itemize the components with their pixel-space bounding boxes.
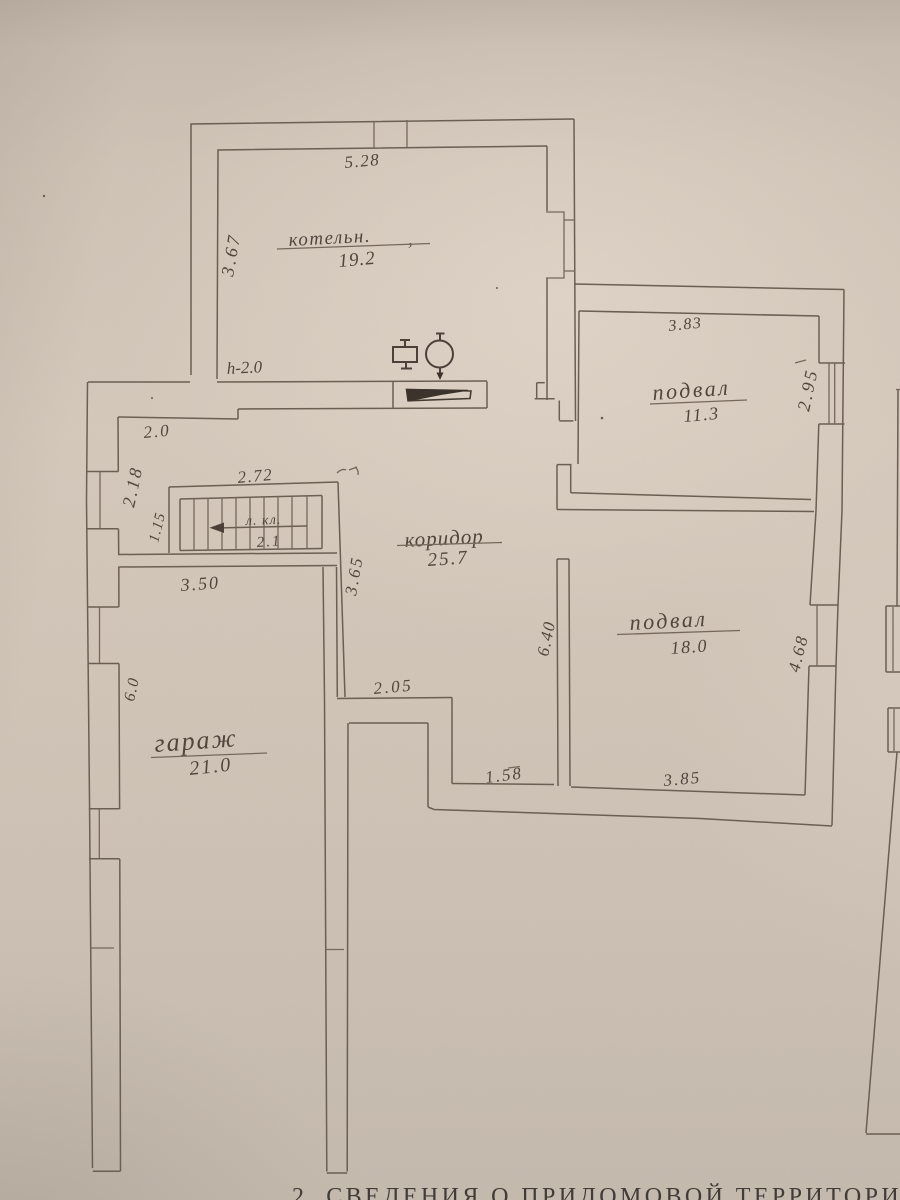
svg-text:3.83: 3.83: [667, 315, 704, 336]
svg-text:гараж: гараж: [153, 723, 238, 758]
svg-text:11.3: 11.3: [683, 403, 721, 426]
svg-text:,: ,: [408, 229, 413, 250]
svg-text:2.1: 2.1: [256, 533, 282, 551]
svg-text:подвал: подвал: [629, 606, 708, 635]
svg-text:коридор: коридор: [404, 524, 484, 552]
svg-text:5.28: 5.28: [344, 150, 381, 172]
svg-text:21.0: 21.0: [188, 754, 233, 780]
svg-text:25.7: 25.7: [427, 547, 470, 571]
svg-text:h-2.0: h-2.0: [226, 357, 263, 378]
svg-text:2.0: 2.0: [143, 421, 172, 442]
svg-text:2.05: 2.05: [373, 676, 414, 698]
svg-text:19.2: 19.2: [338, 248, 377, 272]
svg-text:3.85: 3.85: [662, 768, 702, 790]
svg-text:2.72: 2.72: [237, 465, 274, 487]
svg-text:л. кл.: л. кл.: [245, 513, 282, 529]
svg-text:3.50: 3.50: [179, 572, 221, 595]
svg-text:18.0: 18.0: [670, 635, 709, 658]
svg-text:2. СВЕДЕНИЯ О ПРИДОМОВОЙ Т: 2. СВЕДЕНИЯ О ПРИДОМОВОЙ ТЕРРИТОРИИ: [292, 1184, 900, 1200]
